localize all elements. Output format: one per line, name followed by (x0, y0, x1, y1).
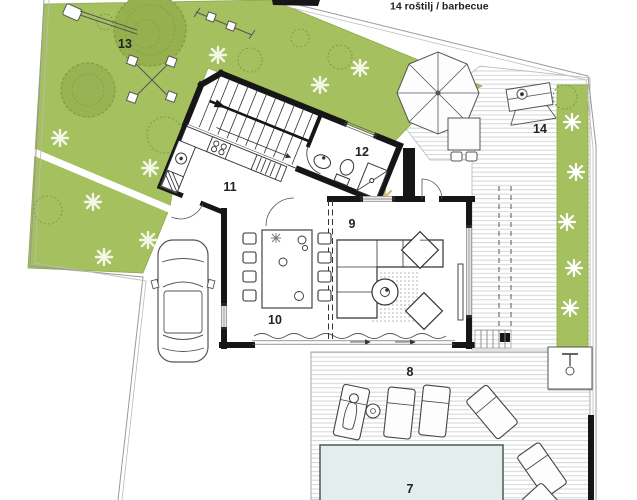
tree-medium (61, 63, 115, 117)
chair (318, 252, 331, 263)
floor-plan-page: 14 roštilj / barbecue 13 14 12 11 9 10 8… (0, 0, 637, 500)
chair (243, 271, 256, 282)
sun-lounger (418, 385, 450, 438)
terrace-chair (451, 152, 462, 161)
room-label-kitchen: 11 (223, 180, 236, 194)
room-label-pool: 7 (407, 482, 414, 496)
chair (243, 233, 256, 244)
corner-column (403, 148, 415, 200)
sun-lounger (383, 387, 415, 440)
room-label-garden: 13 (118, 37, 132, 51)
tv-sideboard (458, 264, 463, 320)
room-label-bathroom: 12 (355, 145, 369, 159)
car (151, 240, 215, 362)
room-label-sundeck: 8 (407, 365, 414, 379)
chair (243, 290, 256, 301)
room-label-dining: 10 (268, 313, 282, 327)
outdoor-shower (548, 347, 592, 389)
room-label-living: 9 (349, 217, 356, 231)
floor-plan-svg: 14 roštilj / barbecue 13 14 12 11 9 10 8… (0, 0, 637, 500)
chair (243, 252, 256, 263)
room-label-terrace: 14 (533, 122, 547, 136)
chair (318, 290, 331, 301)
neighbor-wall-top (272, 0, 320, 6)
terrace-chair (466, 152, 477, 161)
chair (318, 233, 331, 244)
chair (318, 271, 331, 282)
terrace-table (448, 118, 480, 150)
boundary-wall-bottom-right (588, 415, 594, 500)
legend-label: 14 roštilj / barbecue (390, 1, 489, 13)
